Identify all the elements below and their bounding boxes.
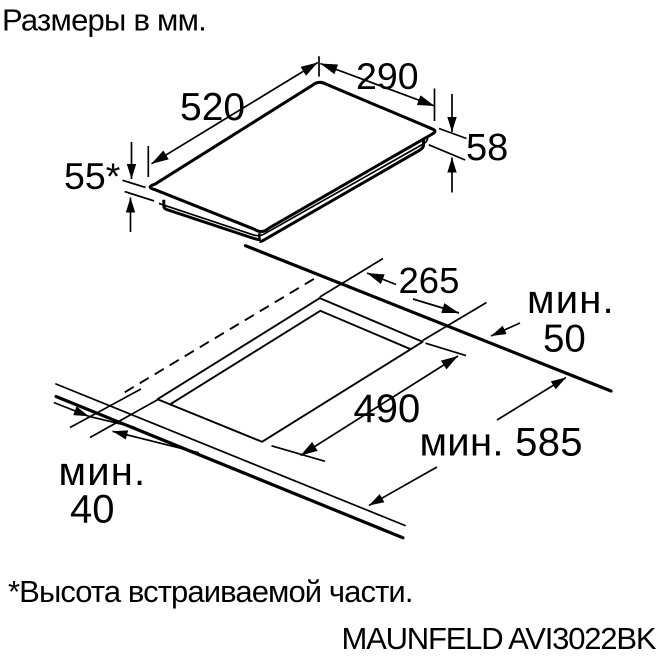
svg-text:55*: 55*: [64, 155, 120, 197]
svg-text:290: 290: [356, 55, 419, 97]
svg-text:50: 50: [543, 318, 586, 361]
svg-text:*Высота встраиваемой части.: *Высота встраиваемой части.: [8, 574, 413, 609]
svg-text:58: 58: [466, 127, 508, 169]
svg-text:MAUNFELD AVI3022BK: MAUNFELD AVI3022BK: [342, 621, 657, 656]
svg-text:265: 265: [399, 260, 460, 301]
svg-text:490: 490: [354, 387, 421, 431]
svg-text:мин. 585: мин. 585: [420, 421, 583, 465]
svg-text:40: 40: [70, 488, 115, 532]
svg-text:Размеры в мм.: Размеры в мм.: [2, 3, 206, 38]
svg-text:мин.: мин.: [527, 278, 615, 322]
svg-text:520: 520: [180, 86, 245, 129]
